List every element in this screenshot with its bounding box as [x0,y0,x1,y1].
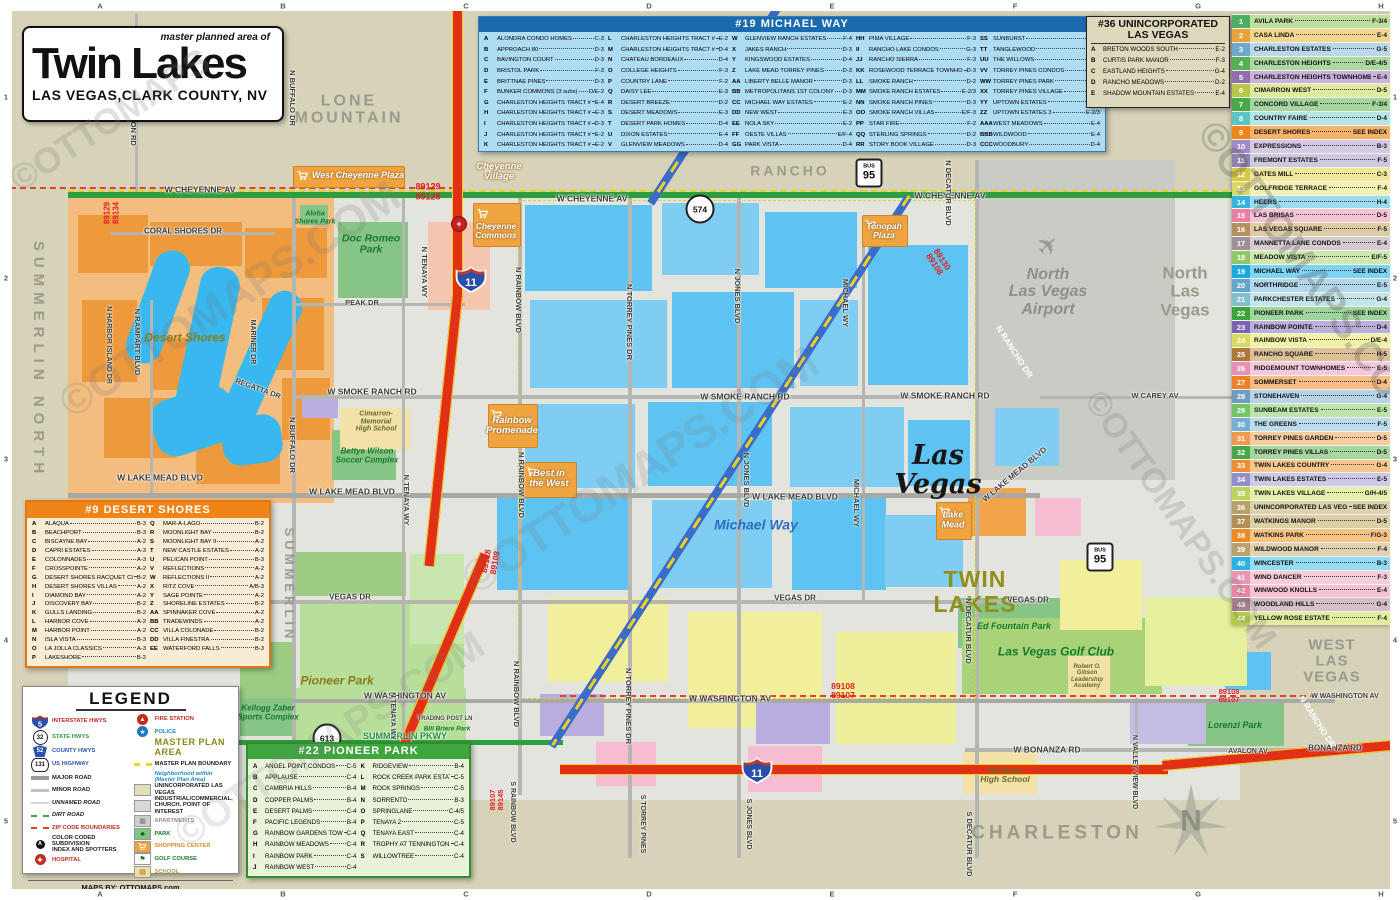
grid-letter: H [1378,890,1383,899]
bus-route-shield-icon: BUS95 [856,159,883,188]
dotted-leader [1321,409,1375,410]
grid-reference: A-2 [255,575,264,581]
legend-icon [28,802,52,804]
entry-key: BB [150,619,163,625]
grid-reference: D-4 [719,142,729,148]
entry-key: VV [980,68,993,74]
grid-reference: G-4 [1376,296,1387,303]
major-road-swatch [31,776,49,780]
grid-letter: A [97,1,102,10]
grid-reference: A-2 [137,584,146,590]
grid-reference: F-3 [595,68,604,74]
grid-reference: E-4 [1091,132,1100,138]
subdivision-name: SPRINGLANE [373,808,413,815]
grid-reference: A-2 [137,593,146,599]
index-entry: UPELICAN POINTB-3 [150,556,264,565]
shopping-cart-icon [297,168,309,186]
entry-key: L [608,36,621,42]
map-title-box: master planned area of Twin Lakes LAS VE… [22,26,284,122]
entry-key: EE [732,121,745,127]
entry-key: L [361,774,373,781]
entry-key: N [32,637,45,643]
grid-reference: G-3 [966,47,976,53]
interstate-freeway [560,764,1168,775]
grid-reference: H-5 [1377,351,1387,358]
row-number: 23 [1232,321,1250,334]
subdivision-name: CHARLESTON HEIGHTS TRACT #55 [621,36,715,42]
legend-row: ✚HOSPITAL [28,854,131,867]
subdivision-name: TANGLEWOOD [993,47,1035,53]
subdivision-name: THE GREENS [1254,421,1297,428]
subdivision-name: DESERT SHORES [1254,129,1310,136]
index-entry: WWTORREY PINES PARKD-2 [980,76,1100,87]
grid-reference: A-2 [255,619,264,625]
sidebar-subdivision-row: 32TORREY PINES VILLASD-5 [1232,445,1390,459]
subdivision-name: VILLA COLONADE [163,628,213,634]
row-number: 35 [1232,487,1250,500]
grid-letter: G [1195,1,1201,10]
grid-reference: C-4 [454,853,464,860]
subdivision-name: NEW WEST [745,110,777,116]
row-number: 13 [1232,182,1250,195]
index-entry: QMAR-A-LAGOB-2 [150,520,264,529]
subdivision-name: HARBOR COVE [45,619,89,625]
index-column: AALAQUAB-3BBEACHPORTB-3CBISCAYNE BAYA-2D… [30,520,148,662]
index-entry: PLAKESHOREB-2 [32,653,146,662]
entry-key: CC [150,628,163,634]
dotted-leader [940,48,965,49]
entry-key: N [608,57,621,63]
sidebar-subdivision-row: 25RANCHO SQUAREH-5 [1232,347,1390,361]
dotted-leader [1332,617,1376,618]
index-entry: ESHADOW MOUNTAIN ESTATESE-4 [1091,88,1225,99]
subdivision-name: ALAQUA [45,521,69,527]
entry-key: G [253,830,265,837]
index-box-pioneer-park: #22 PIONEER PARK AANGEL POINT CONDOSC-5B… [246,742,471,878]
index-column: AALONDRA CONDO HOMESC-3BAPPROACH 80D-3CB… [482,34,606,151]
legend-row: ⚑GOLF COURSE [131,853,234,866]
grid-reference: F-5 [1377,157,1387,164]
grid-reference: C-4 [347,808,357,815]
row-number: 8 [1232,112,1250,125]
legend-label: MINOR ROAD [52,787,90,793]
dotted-leader [1318,520,1375,521]
dotted-leader [1048,101,1090,102]
subdivision-name: CHARLESTON HEIGHTS TRACT #50 [497,110,591,116]
index-entry: FCROSSPOINTEA-2 [32,564,146,573]
entry-key: AA [150,610,163,616]
dotted-leader [1315,353,1375,354]
entry-key: W [732,36,745,42]
grid-reference: E/F-4 [838,132,852,138]
dotted-leader [592,112,594,113]
grid-reference: B-2 [255,521,264,527]
dotted-leader [402,821,453,822]
entry-key: SS [980,36,993,42]
row-number: 21 [1232,293,1250,306]
subdivision-name: ROSEWOOD TERRACE TOWNHOMES [869,68,963,74]
entry-key: I [253,853,265,860]
index-entry: QQSTERLING SPRINGSD-2 [856,129,976,140]
subdivision-name: DAISY LEE [621,89,651,95]
grid-reference: D-3 [595,121,605,127]
row-number: 15 [1232,209,1250,222]
grid-reference: E-4 [1377,74,1387,81]
legend-label: DIRT ROAD [52,812,84,818]
map-area-block [300,205,328,225]
map-label: CHARLESTON [971,824,1143,845]
subdivision-name: STERLING SPRINGS [869,132,927,138]
entry-key: N [361,797,373,804]
hospital-icon: ✚ [35,854,46,865]
entry-key: I [32,593,45,599]
legend-row: INDUSTRIAL/COMMERCIAL,CHURCH, POINT OF I… [131,796,234,815]
row-number: 6 [1232,84,1250,97]
subdivision-name: CHARLESTON HEIGHTS TRACT #48 [497,100,591,106]
index-entry: DBRISTOL PARKF-3 [484,66,604,77]
dotted-leader [1279,201,1375,202]
row-body: THE GREENSF-5 [1250,418,1390,431]
entry-key: T [608,121,621,127]
subdivision-name: JAKES RANCH [745,47,786,53]
index-entry: JRAINBOW WESTC-4 [253,862,357,873]
grid-reference: SEE INDEX [1353,129,1387,136]
grid-reference: E-4 [719,132,728,138]
subdivision-name: YELLOW ROSE ESTATE [1254,615,1330,622]
subdivision-name: GULLS LANDING [45,610,92,616]
shopping-cart-icon [526,467,538,477]
subdivision-name: RAINBOW POINTE [1254,324,1313,331]
sidebar-subdivision-row: 18MEADOW VISTAE/F-5 [1232,250,1390,264]
grid-reference: C-5 [454,785,464,792]
legend-right-column: ▲FIRE STATION★POLICEMASTER PLAN AREAMAST… [131,713,234,878]
dotted-leader [299,776,346,777]
grid-reference: E-2 [719,36,728,42]
subdivision-name: CAPRI ESTATES [45,548,91,554]
grid-reference: D-3 [967,68,977,74]
legend-icon [28,789,52,792]
dotted-leader [1320,159,1376,160]
index-column: QMAR-A-LAGOB-2RMOONLIGHT BAYB-2SMOONLIGH… [148,520,266,662]
entry-key: PP [856,121,869,127]
dotted-leader [1327,492,1362,493]
grid-reference: D-3 [843,79,853,85]
index-entry: XXTORREY PINES VILLAGED-3 [980,87,1100,98]
sidebar-subdivision-row: 8COUNTRY FAIRED-4 [1232,111,1390,125]
minor-road-swatch [31,789,49,792]
legend-label: Neighborhood within(Master Plan Area) [155,771,213,784]
grid-reference: D-2 [719,100,729,106]
grid-reference: SEE INDEX [1353,504,1387,511]
legend-title: LEGEND [76,689,186,711]
legend-icon: ⚑ [131,853,155,865]
entry-key: AA [732,79,745,85]
dotted-leader [1335,437,1374,438]
subdivision-name: CASA LINDA [1254,32,1294,39]
grid-reference: F-3 [719,68,728,74]
grid-reference: B-2 [137,655,146,661]
grid-reference: F-4 [843,36,852,42]
grid-reference: A-3 [137,557,146,563]
dotted-leader [413,810,447,811]
dotted-leader [814,80,842,81]
index-entry: SSSUNBURSTF-2 [980,34,1100,45]
grid-reference: E-2 [595,132,604,138]
subdivision-name: CHARLESTON HEIGHTS TOWNHOMES [1254,74,1371,81]
map-label: RANCHO [750,163,829,178]
row-number: 19 [1232,265,1250,278]
grid-reference: E-5 [1377,476,1387,483]
dotted-leader [93,603,135,604]
unnamed-road-swatch [31,802,49,804]
grid-reference: E-3 [595,110,604,116]
dotted-leader [1028,133,1090,134]
subdivision-name: LAS VEGAS SQUARE [1254,226,1322,233]
grid-reference: SEE INDEX [1353,310,1387,317]
dotted-leader [1333,48,1374,49]
grid-reference: E/F-5 [1371,254,1387,261]
master-plan-boundary-swatch [134,763,152,766]
dotted-leader [1301,395,1374,396]
index-entry: RRSTORY BOOK VILLAGED-3 [856,140,976,151]
grid-reference: C-4 [347,830,357,837]
entry-key: V [150,566,163,572]
index-entry: CCAMBRIA HILLSB-4 [253,783,357,794]
grid-letter: E [829,890,834,899]
subdivision-name: HARBOR POINT [45,628,90,634]
subdivision-name: MAR-A-LAGO [163,521,200,527]
grid-reference: A-2 [255,548,264,554]
dotted-leader [787,48,841,49]
index-entry: KCHARLESTON HEIGHTS TRACT #54E-2 [484,140,604,151]
entry-key: Q [150,521,163,527]
subdivision-name: BUNK­ER COMMONS (3 subs) [497,89,578,95]
sidebar-subdivision-row: 40WINCESTERB-3 [1232,556,1390,570]
row-body: WATKINGS MANORD-5 [1250,515,1390,528]
entry-key: E [253,808,265,815]
legend-icon [131,784,155,796]
legend-icon: 52 [28,745,52,757]
grid-reference: SEE INDEX [1353,268,1387,275]
row-number: 36 [1232,501,1250,514]
legend-row: 32STATE HWYS [28,730,131,745]
legend-row: SHOPPING CENTER [131,840,234,853]
subdivision-name: SMOKE RANCH ESTATES [869,89,940,95]
legend-icon: A [28,840,52,849]
index-entry: MHARBOR POINTA-2 [32,627,146,636]
row-body: GATES MILLC-3 [1250,168,1390,181]
entry-key: DD [732,110,745,116]
dotted-leader [1296,34,1375,35]
grid-reference: D-4 [1091,142,1101,148]
grid-number: 2 [1393,274,1397,283]
subdivision-name: TWIN LAKES VILLAGE [1254,490,1325,497]
subdivision-name: TORREY PINES CONDOS [993,68,1064,74]
shopping-cart-icon [138,843,147,850]
subdivision-name: TENAYA 2 [373,819,402,826]
subdivision-name: MOONLIGHT BAY [163,530,212,536]
subdivision-name: DESERT SHORES RACQUET CLUB [45,575,133,581]
row-body: LAS BRISASD-5 [1250,209,1390,222]
grid-reference: E-2/3 [962,89,976,95]
index-entry: AASPINNAKER COVEA-2 [150,609,264,618]
sidebar-subdivision-row: 26RIDGEMOUNT TOWNHOMESE-5 [1232,361,1390,375]
subdivision-name: ISLA VISTA [45,637,76,643]
entry-key: JJ [856,57,869,63]
svg-text:N: N [1180,804,1201,837]
subdivision-name: RAINBOW VISTA [1254,337,1307,344]
entry-key: B [253,774,265,781]
index-column: SSSUNBURSTF-2TTTANGLEWOODD-2/3UUTHE WILL… [978,34,1102,151]
subdivision-name: LAKE MEAD TORREY PINES [745,68,824,74]
sidebar-subdivision-row: 11FREMONT ESTATESF-5 [1232,153,1390,167]
subdivision-name: WINCESTER [1254,560,1294,567]
map-margin-top [0,0,1400,11]
index-entry: DRANCHO MEADOWSD-2 [1091,77,1225,88]
row-number: 26 [1232,362,1250,375]
subdivision-name: NOLA SKY [745,121,774,127]
dotted-leader [408,799,453,800]
entry-key: P [32,655,45,661]
grid-reference: A-2 [137,539,146,545]
grid-reference: G/H-4/5 [1365,490,1387,497]
row-body: CHARLESTON HEIGHTS TOWNHOMESE-4 [1250,71,1390,84]
subdivision-name: MANNETTA LANE CONDOS [1254,240,1341,247]
subdivision-name: STORY BOOK VILLAGE [869,142,934,148]
row-body: PARKCHESTER ESTATESG-4 [1250,293,1390,306]
index-entry: TDESERT PARK HOMESD-4 [608,119,728,130]
grid-reference: F-2 [967,121,976,127]
grid-number: 4 [4,636,8,645]
grid-reference: A-2 [255,610,264,616]
entry-key: MM [856,89,869,95]
grid-reference: A-3 [137,646,146,652]
legend-label: UNINCORPORATED LAS VEGAS [155,783,234,796]
grid-reference: D-3 [595,79,605,85]
entry-key: T [150,548,163,554]
row-body: RANCHO SQUAREH-5 [1250,348,1390,361]
subdivision-name: RAINBOW MEADOWS [265,841,329,848]
index-entry: BAPPLAUSEC-4 [253,772,357,783]
row-body: WINWOOD KNOLLSE-4 [1250,585,1390,598]
dotted-leader [900,123,966,124]
row-body: COUNTRY FAIRED-4 [1250,112,1390,125]
legend-row: ACOLOR CODED SUBDIVISIONINDEX AND SPOTTE… [28,835,131,854]
entry-key: O [361,808,373,815]
dotted-leader [1053,112,1085,113]
entry-key: DD [150,637,163,643]
grid-letter: D [646,890,651,899]
subdivision-name: THE WILLOWS [993,57,1034,63]
index-entry: LHARBOR COVEA-2 [32,618,146,627]
row-body: MANNETTA LANE CONDOSE-4 [1250,237,1390,250]
sidebar-subdivision-row: 13GOLFRIDGE TERRACEF-4 [1232,181,1390,195]
index-entry: CEASTLAND HEIGHTSG-4 [1091,66,1225,77]
subdivision-name: PACIFIC LEGENDS [265,819,320,826]
dotted-leader [451,776,453,777]
entry-key: B [484,47,497,53]
row-number: 1 [1232,15,1250,28]
dotted-leader [555,59,594,60]
dotted-leader [964,70,966,71]
grid-reference: D-2 [967,79,977,85]
grid-reference: B-3 [1377,560,1387,567]
entry-key: M [32,628,45,634]
entry-key: S [608,110,621,116]
entry-key: FF [732,132,745,138]
index-entry: CBAVINGTON COURTD-3 [484,55,604,66]
dotted-leader [1299,423,1376,424]
sidebar-subdivision-row: 23RAINBOW POINTED-4 [1232,320,1390,334]
entry-key: Z [732,68,745,74]
grid-reference: F-5 [1377,226,1387,233]
index-entry: BBMETROPOLITANS 1ST COLONYD-3 [732,87,852,98]
dotted-leader [314,855,346,856]
subdivision-name: MOONLIGHT BAY II [163,539,216,545]
legend-icon: ♣ [131,828,155,840]
subdivision-name: DISCOVERY BAY [45,601,92,607]
index-entry: YSAGE POINTEA-2 [150,591,264,600]
row-number: 16 [1232,223,1250,236]
entry-key: C [484,57,497,63]
dotted-leader [716,38,718,39]
sidebar-subdivision-row: 30THE GREENSF-5 [1232,417,1390,431]
subdivision-name: LAS BRISAS [1254,212,1294,219]
entry-key: R [150,530,163,536]
subdivision-name: SMOKE RANCH VILLAS [869,110,934,116]
entry-key: NN [856,100,869,106]
index-title: #19 MICHAEL WAY [479,17,1105,32]
legend-label: MASTER PLAN AREA [155,738,234,758]
index-entry: PCOUNTRY LANEF-2 [608,76,728,87]
map-area-block [338,222,408,298]
grid-reference: B-3 [454,797,464,804]
grid-letter: F [1013,890,1018,899]
index-entry: MCHARLESTON HEIGHTS TRACT #58D-4 [608,45,728,56]
sidebar-subdivision-row: 7CONCORD VILLAGEF-3/4 [1232,97,1390,111]
legend-icon: ▤ [131,866,155,878]
entry-key: H [32,584,45,590]
subdivision-name: SMOKE RANCH PINES [869,100,932,106]
sidebar-subdivision-row: 2CASA LINDAE-4 [1232,28,1390,42]
subdivision-name: CHARLESTON ESTATES [1254,46,1331,53]
index-entry: GDESERT SHORES RACQUET CLUBB-2 [32,573,146,582]
legend-icon [28,827,52,829]
entry-key: KK [856,68,869,74]
index-entry: GRAINBOW GARDENS TOWNHOMESC-4 [253,828,357,839]
row-number: 30 [1232,418,1250,431]
grid-reference: B-2 [255,637,264,643]
row-body: WATKINS PARKF/G-3 [1250,529,1390,542]
dotted-leader [1347,367,1375,368]
index-entry: PTENAYA 2C-5 [361,817,465,828]
entry-key: CC [732,100,745,106]
us-highway-shield-icon: 131 [31,758,49,772]
index-entry: JCHARLESTON HEIGHTS TRACT #53E-2 [484,129,604,140]
subdivision-name: RANCHO SIERRA [869,57,918,63]
grid-reference: F-4 [1377,185,1387,192]
legend-row: 52COUNTY HWYS [28,745,131,758]
dotted-leader [1306,312,1351,313]
index-box-desert-shores: #9 DESERT SHORES AALAQUAB-3BBEACHPORTB-3… [25,500,271,668]
map-margin-right [1390,0,1400,900]
dotted-leader [671,101,718,102]
entry-key: M [608,47,621,53]
map-label: WEST LAS VEGAS [1303,638,1361,687]
index-column: AANGEL POINT CONDOSC-5BAPPLAUSEC-4CCAMBR… [251,761,359,873]
index-box-unincorporated: #36 UNINCORPORATEDLAS VEGAS ABRETON WOOD… [1086,16,1230,108]
row-body: SUNBEAM ESTATESE-5 [1250,404,1390,417]
